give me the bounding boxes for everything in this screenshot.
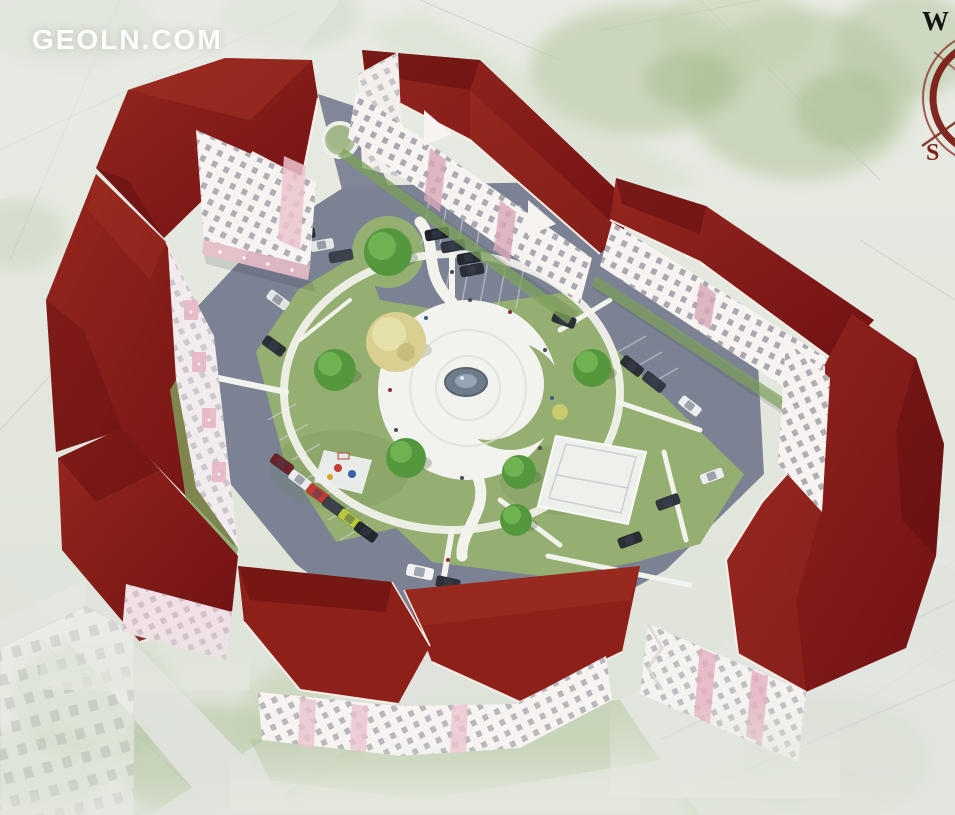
compass-west-label: W: [922, 6, 949, 36]
compass-south-label: S: [926, 140, 939, 166]
yellow-bush: [552, 404, 568, 420]
site-plan-render: W S: [0, 0, 955, 815]
gap-planting-shrub: [327, 126, 351, 150]
watermark: GEOLN.COM: [32, 24, 223, 56]
fountain: [445, 368, 487, 396]
screenshot-root: W S GEOLN.COM: [0, 0, 955, 815]
